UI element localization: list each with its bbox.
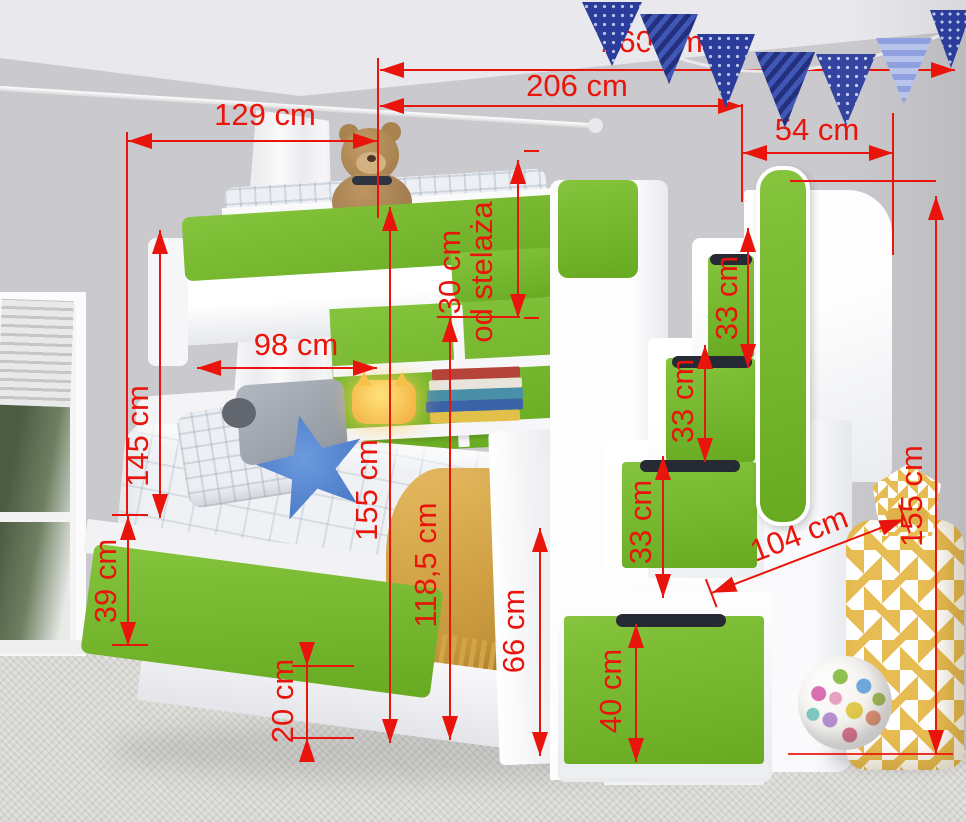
step-drawer-2-handle: [672, 356, 752, 368]
step-drawer-3: [622, 462, 757, 568]
step-drawer-2: [666, 358, 755, 462]
venetian-blind: [0, 299, 74, 407]
beach-ball: [798, 656, 892, 750]
bunting-string: [0, 0, 966, 140]
teddy-bear-nose: [367, 155, 376, 162]
teddy-bear-ribbon: [352, 176, 392, 185]
upper-rail-step: [451, 247, 564, 304]
step-drawer-3-handle: [640, 460, 740, 472]
bottom-drawer-handle: [616, 614, 726, 627]
cat-night-light-ear: [356, 372, 372, 386]
step-drawer-1: [708, 256, 754, 358]
cat-night-light: [352, 380, 416, 424]
window-glazing-bar: [0, 512, 70, 522]
storage-bag-tie: [886, 508, 928, 524]
window-tree-view: [0, 402, 70, 642]
product-dimension-diagram: 260 cm 206 cm 129 cm 54 cm: [0, 0, 966, 822]
cat-night-light-ear-2: [394, 372, 410, 386]
upper-frame-left-post: [148, 238, 188, 366]
step-drawer-1-handle: [710, 254, 752, 265]
cushion-dark-knot: [222, 398, 256, 428]
bottom-drawer-front: [564, 616, 764, 764]
bottom-drawer-plinth: [560, 764, 768, 778]
handrail-green: [756, 166, 810, 526]
stairs-top-green-panel: [558, 180, 638, 278]
